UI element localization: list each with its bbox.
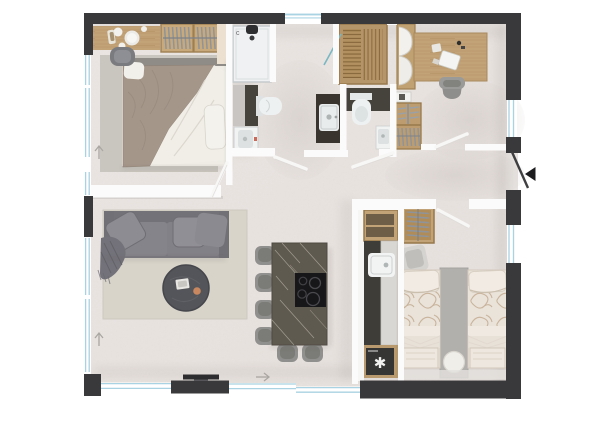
- svg-text:c: c: [236, 30, 240, 37]
- svg-text:✱: ✱: [374, 355, 387, 372]
